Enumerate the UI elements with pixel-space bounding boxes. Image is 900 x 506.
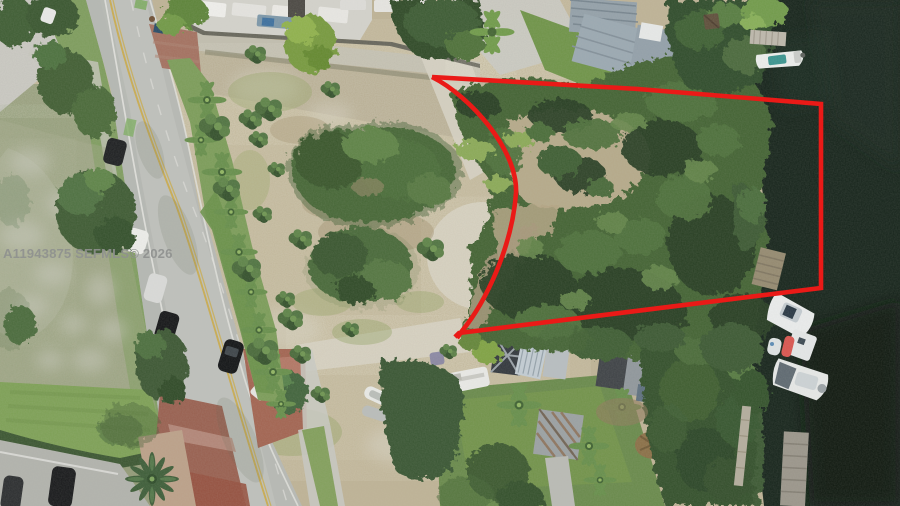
svg-text:A11943875 SEFMLS© 2026: A11943875 SEFMLS© 2026 [3,246,173,261]
